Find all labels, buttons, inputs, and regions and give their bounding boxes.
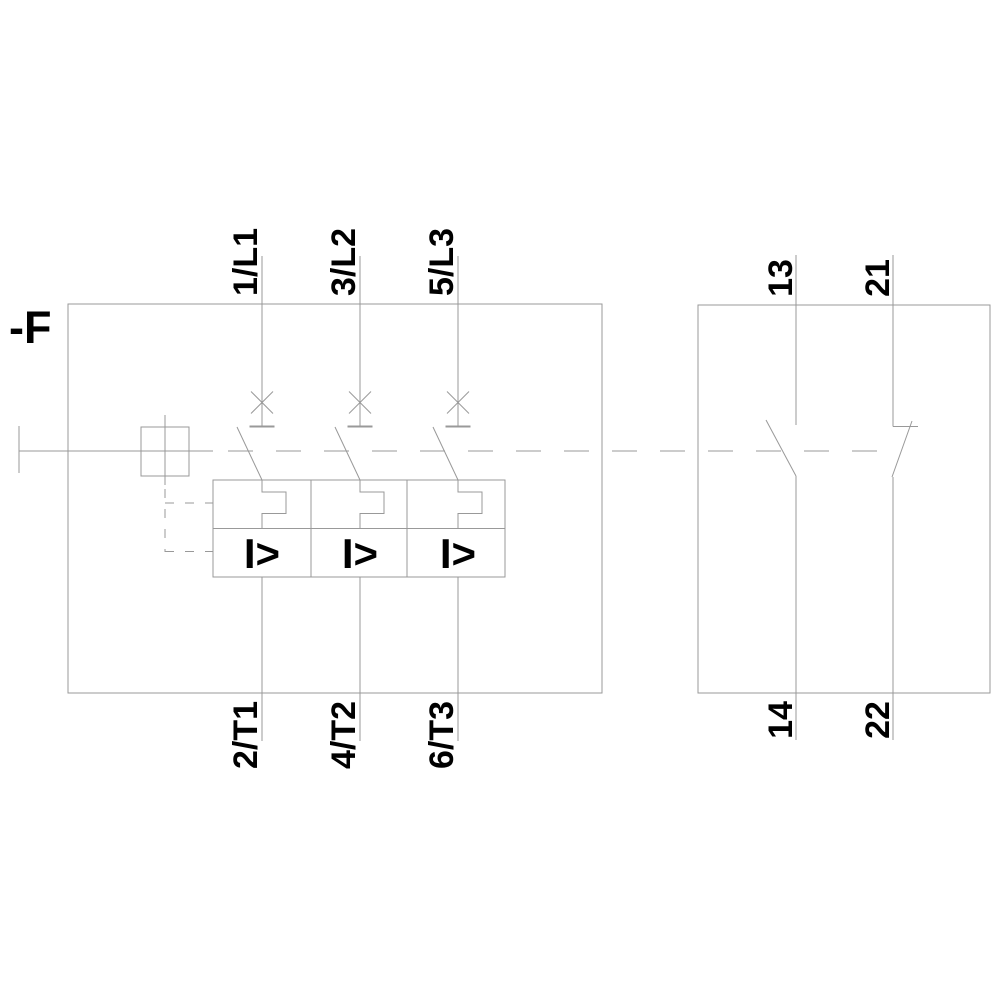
pole-2-overcurrent-release-symbol: I> <box>342 530 378 577</box>
aux-nc-contact-blade <box>892 421 912 477</box>
terminal-label-21: 21 <box>859 259 897 297</box>
terminal-label-14: 14 <box>762 701 800 739</box>
pole-1-contact-blade <box>237 427 262 480</box>
pole-1-overcurrent-release-symbol: I> <box>244 530 280 577</box>
terminal-label-4T2: 4/T2 <box>325 701 363 769</box>
circuit-breaker-schematic: -F 1/L1 I> 2/T1 3/L2 I> 4/T <box>0 0 1000 1000</box>
pole-2-thermal-release-symbol <box>360 480 384 529</box>
pole-3-thermal-release-symbol <box>458 480 482 529</box>
pole-3: 5/L3 I> 6/T3 <box>423 228 482 769</box>
terminal-label-13: 13 <box>762 259 800 297</box>
terminal-label-1L1: 1/L1 <box>227 228 265 296</box>
pole-1: 1/L1 I> 2/T1 <box>227 228 286 769</box>
aux-no-contact: 13 14 <box>762 255 800 740</box>
pole-3-overcurrent-release-symbol: I> <box>440 530 476 577</box>
pole-2-contact-blade <box>335 427 360 480</box>
terminal-label-22: 22 <box>859 701 897 739</box>
terminal-label-3L2: 3/L2 <box>325 228 363 296</box>
aux-nc-contact: 21 22 <box>859 255 918 740</box>
device-designator-label: -F <box>9 302 51 353</box>
terminal-label-6T3: 6/T3 <box>423 701 461 769</box>
terminal-label-5L3: 5/L3 <box>423 228 461 296</box>
aux-no-contact-blade <box>766 420 796 476</box>
pole-2: 3/L2 I> 4/T2 <box>325 228 384 769</box>
aux-contact-block-outline <box>698 305 990 693</box>
main-breaker-outline <box>68 304 602 693</box>
terminal-label-2T1: 2/T1 <box>227 701 265 769</box>
pole-3-contact-blade <box>433 427 458 480</box>
pole-1-thermal-release-symbol <box>262 480 286 529</box>
